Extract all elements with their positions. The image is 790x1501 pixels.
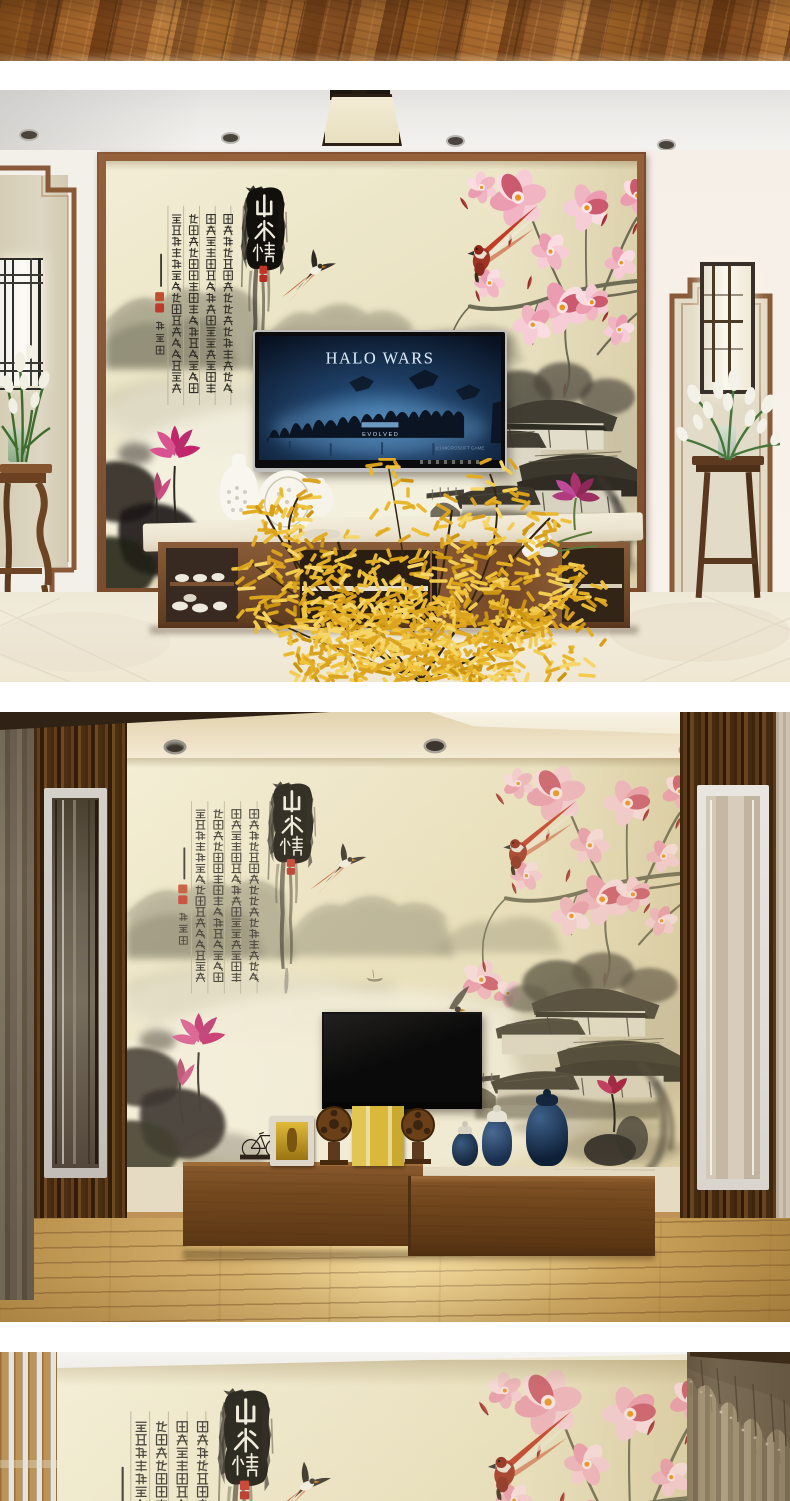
svg-text:(c) MICROSOFT GAME: (c) MICROSOFT GAME [435,445,484,450]
svg-text:E V O L V E D: E V O L V E D [362,432,398,438]
svg-text:HALO WARS: HALO WARS [326,348,435,367]
